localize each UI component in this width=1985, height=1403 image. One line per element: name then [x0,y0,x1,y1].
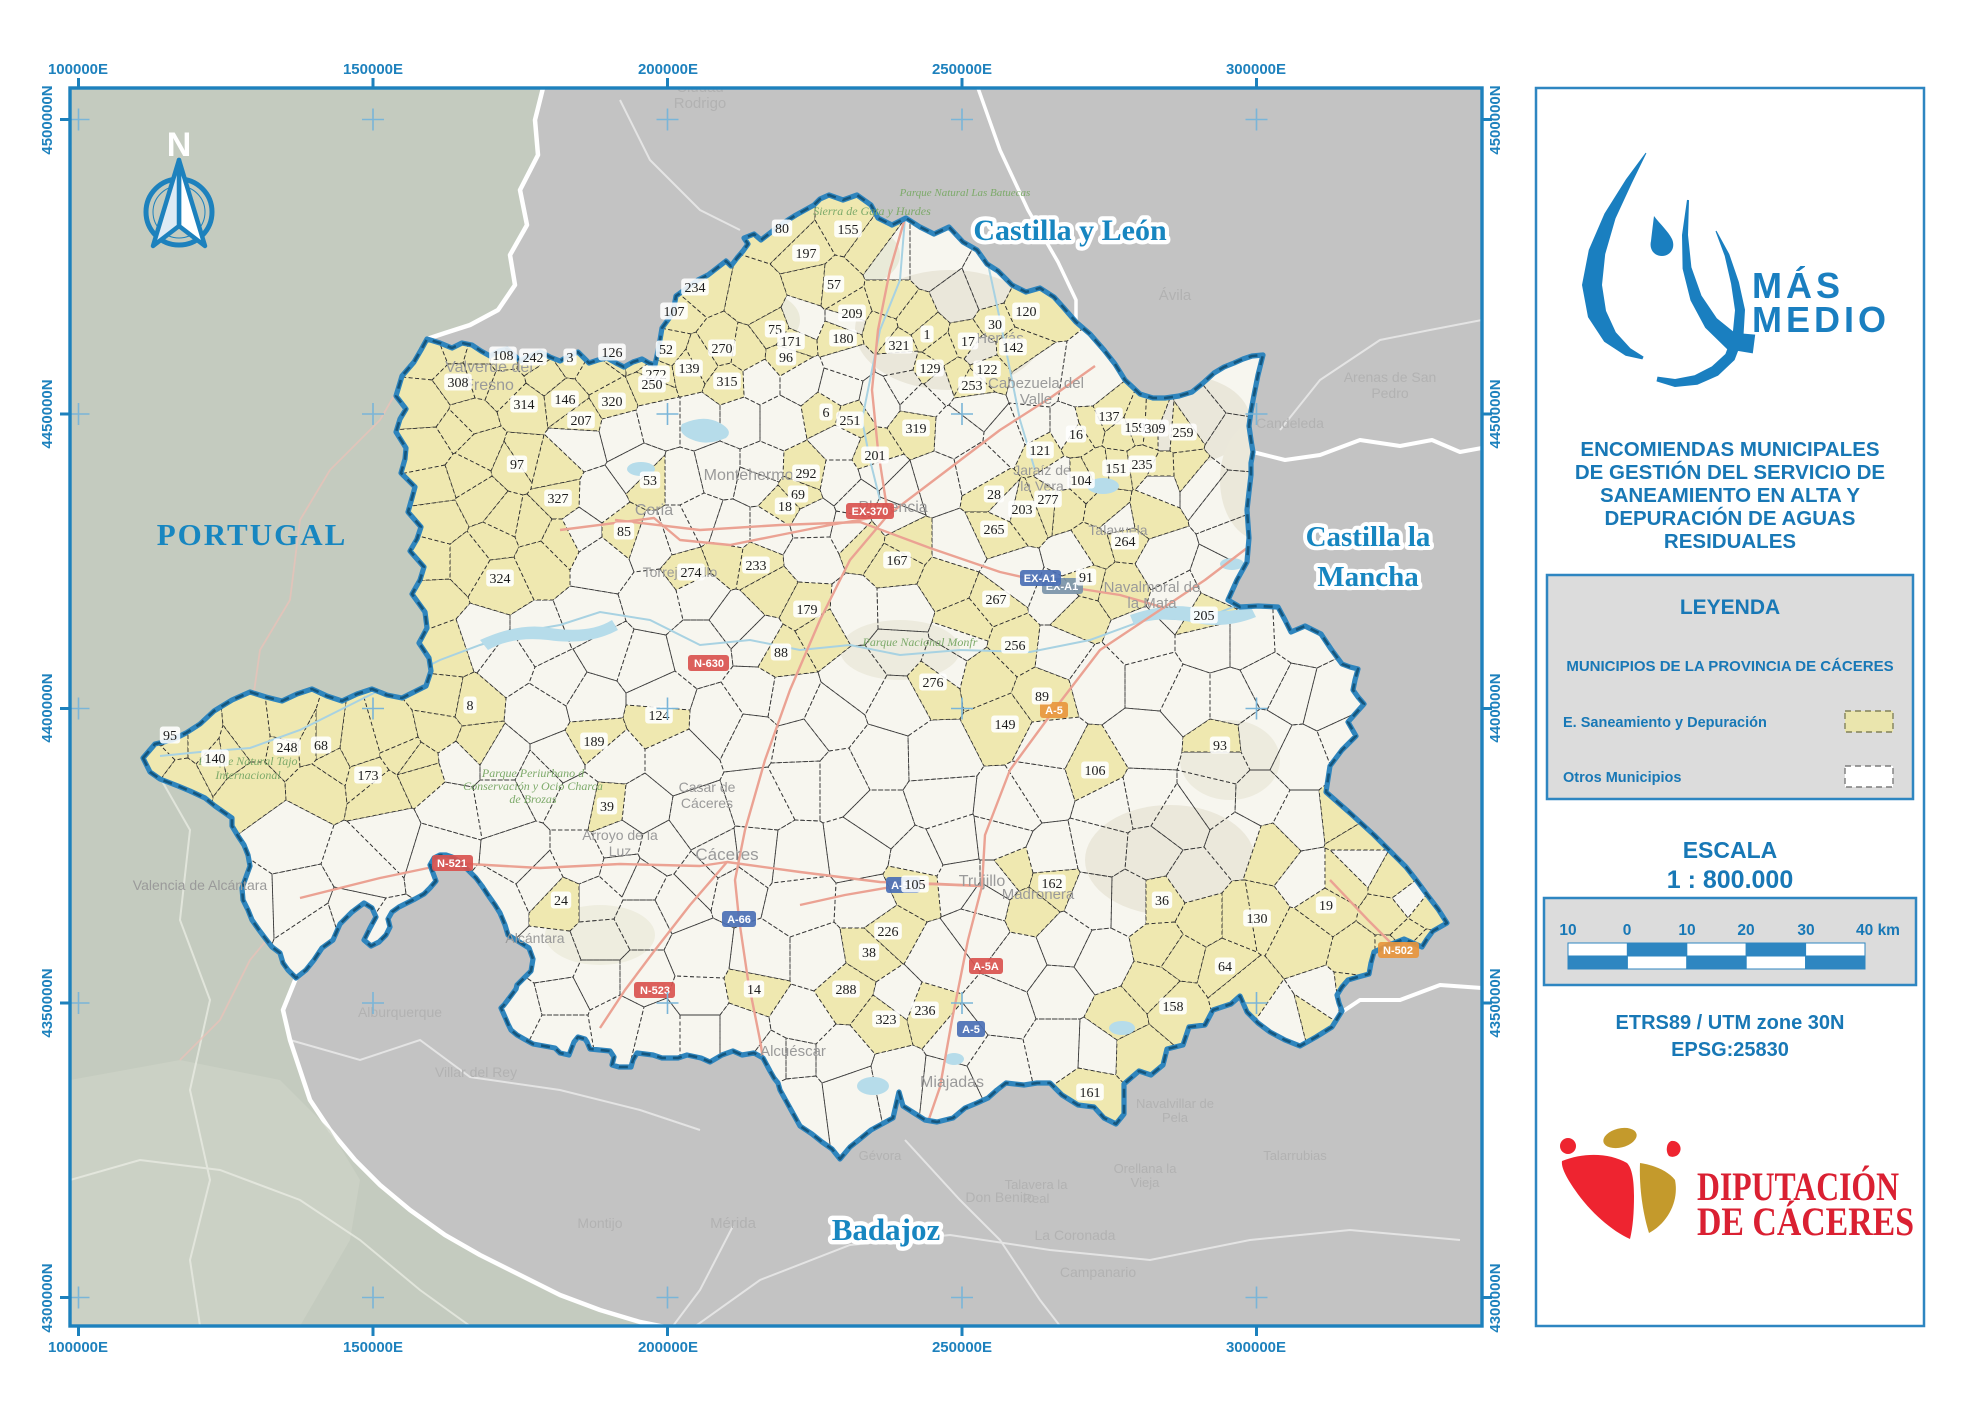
svg-text:253: 253 [962,379,983,394]
svg-text:Cáceres: Cáceres [681,795,733,811]
svg-text:250000E: 250000E [932,1339,992,1356]
svg-text:201: 201 [865,449,886,464]
svg-text:ESCALA: ESCALA [1683,837,1778,863]
svg-text:250000E: 250000E [932,61,992,78]
svg-text:105: 105 [905,878,926,893]
svg-text:Vieja: Vieja [1131,1175,1160,1190]
svg-text:108: 108 [493,349,514,364]
svg-text:209: 209 [842,307,863,322]
svg-text:4400000N: 4400000N [1487,673,1504,742]
svg-text:4300000N: 4300000N [39,1263,56,1332]
svg-text:88: 88 [774,646,788,661]
svg-text:24: 24 [554,894,568,909]
svg-text:167: 167 [887,554,908,569]
svg-text:Valle: Valle [1020,391,1052,408]
svg-text:264: 264 [1115,535,1136,550]
svg-text:4400000N: 4400000N [39,673,56,742]
svg-text:120: 120 [1016,305,1037,320]
svg-text:126: 126 [602,346,623,361]
svg-text:104: 104 [1071,474,1092,489]
svg-text:4350000N: 4350000N [1487,968,1504,1037]
svg-text:A-5: A-5 [962,1024,980,1036]
svg-text:205: 205 [1194,609,1215,624]
svg-text:80: 80 [775,222,789,237]
svg-text:321: 321 [889,339,910,354]
svg-text:276: 276 [923,676,944,691]
svg-text:LEYENDA: LEYENDA [1680,596,1780,619]
svg-text:de Brozas: de Brozas [509,792,557,806]
svg-text:Parque Periurbano d: Parque Periurbano d [481,766,585,780]
svg-text:A-5A: A-5A [973,961,999,973]
svg-text:91: 91 [1079,571,1093,586]
svg-text:100000E: 100000E [48,61,108,78]
svg-text:ENCOMIENDAS MUNICIPALES: ENCOMIENDAS MUNICIPALES [1580,438,1879,461]
svg-text:28: 28 [987,488,1001,503]
svg-text:Montijo: Montijo [577,1215,622,1231]
svg-text:N-521: N-521 [437,858,467,870]
svg-text:1: 1 [924,328,931,343]
svg-text:17: 17 [961,335,975,350]
svg-text:38: 38 [862,946,876,961]
svg-text:107: 107 [664,305,685,320]
svg-text:N-630: N-630 [694,658,724,670]
svg-text:Arenas de San: Arenas de San [1344,369,1437,385]
svg-text:129: 129 [920,362,941,377]
svg-text:36: 36 [1155,894,1169,909]
svg-text:DEPURACIÓN DE AGUAS: DEPURACIÓN DE AGUAS [1605,506,1856,530]
svg-text:Real: Real [1023,1191,1050,1206]
svg-text:Castilla la: Castilla la [1306,521,1431,553]
svg-text:Parque Nacional Monfr: Parque Nacional Monfr [862,635,978,649]
svg-text:130: 130 [1247,912,1268,927]
svg-text:MEDIO: MEDIO [1752,299,1890,340]
svg-text:96: 96 [779,351,793,366]
svg-text:SANEAMIENTO EN ALTA Y: SANEAMIENTO EN ALTA Y [1600,484,1860,507]
svg-text:161: 161 [1080,1086,1101,1101]
svg-text:N: N [167,126,192,164]
svg-text:10: 10 [1559,922,1576,939]
svg-text:203: 203 [1012,503,1033,518]
svg-text:146: 146 [555,393,576,408]
svg-text:270: 270 [712,342,733,357]
svg-text:140: 140 [205,752,226,767]
svg-text:La Coronada: La Coronada [1035,1227,1116,1243]
svg-text:320: 320 [602,395,623,410]
svg-text:EPSG:25830: EPSG:25830 [1671,1039,1789,1061]
svg-text:259: 259 [1173,426,1194,441]
svg-text:324: 324 [490,572,511,587]
svg-text:14: 14 [747,983,761,998]
svg-text:300000E: 300000E [1226,61,1286,78]
svg-text:Sierra de Gata y Hurdes: Sierra de Gata y Hurdes [813,204,931,218]
svg-text:18: 18 [778,500,792,515]
svg-text:106: 106 [1085,764,1106,779]
svg-text:3: 3 [567,351,574,366]
svg-text:A-66: A-66 [727,914,751,926]
svg-text:149: 149 [995,718,1016,733]
svg-text:197: 197 [796,247,817,262]
svg-text:EX-A1: EX-A1 [1024,573,1056,585]
svg-text:Navalvillar de: Navalvillar de [1136,1096,1214,1111]
svg-text:4450000N: 4450000N [39,379,56,448]
svg-text:256: 256 [1005,639,1026,654]
svg-text:Candeleda: Candeleda [1256,415,1324,431]
svg-text:151: 151 [1106,462,1127,477]
svg-text:300000E: 300000E [1226,1339,1286,1356]
svg-text:Castilla y León: Castilla y León [973,214,1167,247]
svg-text:179: 179 [797,603,818,618]
svg-text:39: 39 [600,800,614,815]
svg-text:200000E: 200000E [638,1339,698,1356]
svg-text:100000E: 100000E [48,1339,108,1356]
svg-text:158: 158 [1163,1000,1184,1015]
svg-text:53: 53 [643,474,657,489]
svg-text:Internacional: Internacional [214,768,281,782]
svg-text:200000E: 200000E [638,61,698,78]
svg-text:Campanario: Campanario [1060,1264,1136,1280]
svg-text:Valencia de Alcántara: Valencia de Alcántara [133,877,268,893]
svg-text:Jaraíz de: Jaraíz de [1013,462,1071,478]
svg-text:137: 137 [1099,410,1120,425]
svg-text:Navalmoral de: Navalmoral de [1104,579,1201,596]
svg-text:N-523: N-523 [640,985,670,997]
svg-text:64: 64 [1218,960,1232,975]
svg-text:173: 173 [358,769,379,784]
svg-text:124: 124 [649,709,670,724]
svg-text:Mérida: Mérida [710,1215,757,1232]
svg-text:Otros Municipios: Otros Municipios [1563,770,1681,786]
svg-text:30: 30 [1797,922,1814,939]
svg-text:235: 235 [1132,458,1153,473]
svg-text:315: 315 [717,375,738,390]
svg-text:180: 180 [833,332,854,347]
svg-text:Talarrubias: Talarrubias [1263,1148,1327,1163]
svg-text:Coria: Coria [635,502,673,519]
svg-text:250: 250 [642,378,663,393]
svg-text:233: 233 [746,559,767,574]
svg-text:Miajadas: Miajadas [920,1074,984,1091]
svg-text:PORTUGAL: PORTUGAL [157,517,348,552]
svg-text:Cáceres: Cáceres [695,845,758,864]
svg-text:207: 207 [571,414,592,429]
svg-text:234: 234 [685,281,706,296]
svg-text:85: 85 [617,525,631,540]
svg-text:30: 30 [988,318,1002,333]
svg-text:N-502: N-502 [1383,945,1413,957]
svg-text:274: 274 [681,566,702,581]
svg-text:Parque Natural Las Batuecas: Parque Natural Las Batuecas [899,187,1031,199]
svg-text:4500000N: 4500000N [1487,85,1504,154]
svg-text:Rodrigo: Rodrigo [674,95,727,112]
svg-text:292: 292 [796,467,817,482]
svg-text:319: 319 [906,422,927,437]
svg-text:8: 8 [467,699,474,714]
svg-text:1 : 800.000: 1 : 800.000 [1667,866,1794,894]
svg-text:277: 277 [1038,493,1059,508]
svg-text:314: 314 [514,398,535,413]
svg-text:150000E: 150000E [343,1339,403,1356]
svg-text:Gévora: Gévora [859,1148,902,1163]
svg-text:EX-370: EX-370 [852,506,889,518]
svg-text:288: 288 [836,983,857,998]
svg-text:ETRS89 / UTM zone 30N: ETRS89 / UTM zone 30N [1616,1012,1845,1034]
svg-text:251: 251 [840,414,861,429]
svg-text:308: 308 [448,376,469,391]
svg-text:52: 52 [659,343,673,358]
svg-text:89: 89 [1035,690,1049,705]
svg-text:309: 309 [1145,422,1166,437]
svg-text:Casar de: Casar de [679,779,736,795]
svg-text:4500000N: 4500000N [39,85,56,154]
svg-text:327: 327 [548,492,569,507]
svg-text:139: 139 [679,362,700,377]
svg-text:189: 189 [584,735,605,750]
svg-text:97: 97 [510,458,524,473]
svg-text:57: 57 [827,278,841,293]
svg-text:E. Saneamiento y Depuración: E. Saneamiento y Depuración [1563,715,1767,731]
svg-text:Alcántara: Alcántara [505,930,564,946]
svg-text:4450000N: 4450000N [1487,379,1504,448]
svg-text:95: 95 [163,729,177,744]
svg-text:20: 20 [1737,922,1754,939]
svg-text:Luz: Luz [609,843,632,859]
svg-text:122: 122 [977,363,998,378]
svg-text:0: 0 [1623,922,1632,939]
svg-text:Pedro: Pedro [1371,385,1409,401]
svg-text:236: 236 [915,1004,936,1019]
svg-text:242: 242 [523,351,544,366]
svg-text:MUNICIPIOS DE LA PROVINCIA DE: MUNICIPIOS DE LA PROVINCIA DE CÁCERES [1566,658,1893,675]
svg-text:19: 19 [1319,899,1333,914]
svg-text:248: 248 [277,741,298,756]
svg-text:DE GESTIÓN DEL SERVICIO DE: DE GESTIÓN DEL SERVICIO DE [1575,460,1885,484]
svg-text:323: 323 [876,1013,897,1028]
svg-text:Badajoz: Badajoz [832,1212,941,1247]
svg-text:16: 16 [1069,428,1083,443]
svg-text:226: 226 [878,925,899,940]
svg-text:Mancha: Mancha [1317,561,1419,593]
svg-text:68: 68 [314,739,328,754]
svg-text:Trujillo: Trujillo [959,873,1006,890]
svg-text:Alburquerque: Alburquerque [358,1004,442,1020]
svg-text:DE CÁCERES: DE CÁCERES [1697,1199,1914,1244]
svg-text:93: 93 [1213,739,1227,754]
svg-text:6: 6 [823,406,830,421]
svg-text:A-5: A-5 [1045,705,1063,717]
svg-text:Villar del Rey: Villar del Rey [435,1064,517,1080]
svg-text:Conservación y Ocio Charca: Conservación y Ocio Charca [463,779,603,793]
svg-text:40 km: 40 km [1856,922,1900,939]
svg-text:Ávila: Ávila [1159,287,1192,304]
svg-text:267: 267 [986,593,1007,608]
svg-text:Arroyo de la: Arroyo de la [582,827,658,843]
svg-text:150000E: 150000E [343,61,403,78]
svg-text:4300000N: 4300000N [1487,1263,1504,1332]
svg-text:Talavera la: Talavera la [1005,1177,1069,1192]
svg-text:RESIDUALES: RESIDUALES [1664,530,1796,553]
svg-text:Alcuéscar: Alcuéscar [760,1043,826,1060]
svg-text:155: 155 [838,223,859,238]
svg-text:162: 162 [1042,877,1063,892]
svg-text:142: 142 [1003,341,1024,356]
svg-text:10: 10 [1678,922,1695,939]
svg-text:Cabezuela del: Cabezuela del [988,375,1084,392]
svg-text:Pela: Pela [1162,1110,1189,1125]
svg-text:la Mata: la Mata [1127,595,1177,612]
svg-text:121: 121 [1030,444,1051,459]
svg-text:4350000N: 4350000N [39,968,56,1037]
svg-text:171: 171 [781,335,802,350]
svg-text:Orellana la: Orellana la [1114,1161,1178,1176]
svg-text:265: 265 [984,523,1005,538]
